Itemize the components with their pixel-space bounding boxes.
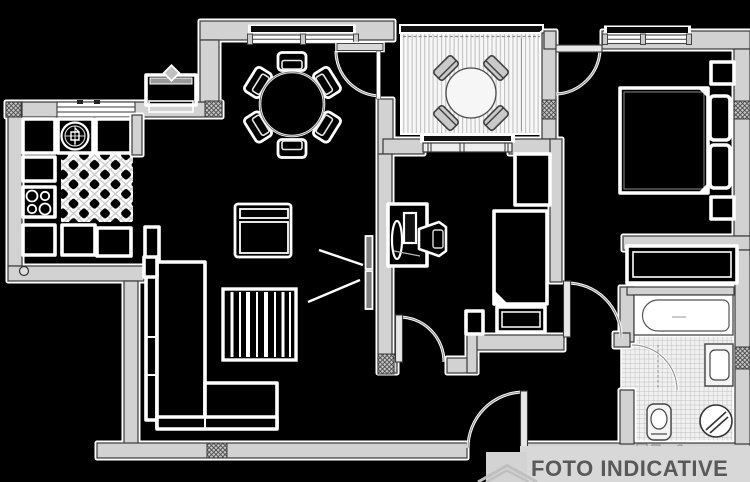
- svg-text:FOTO INDICATIVE: FOTO INDICATIVE: [531, 456, 728, 481]
